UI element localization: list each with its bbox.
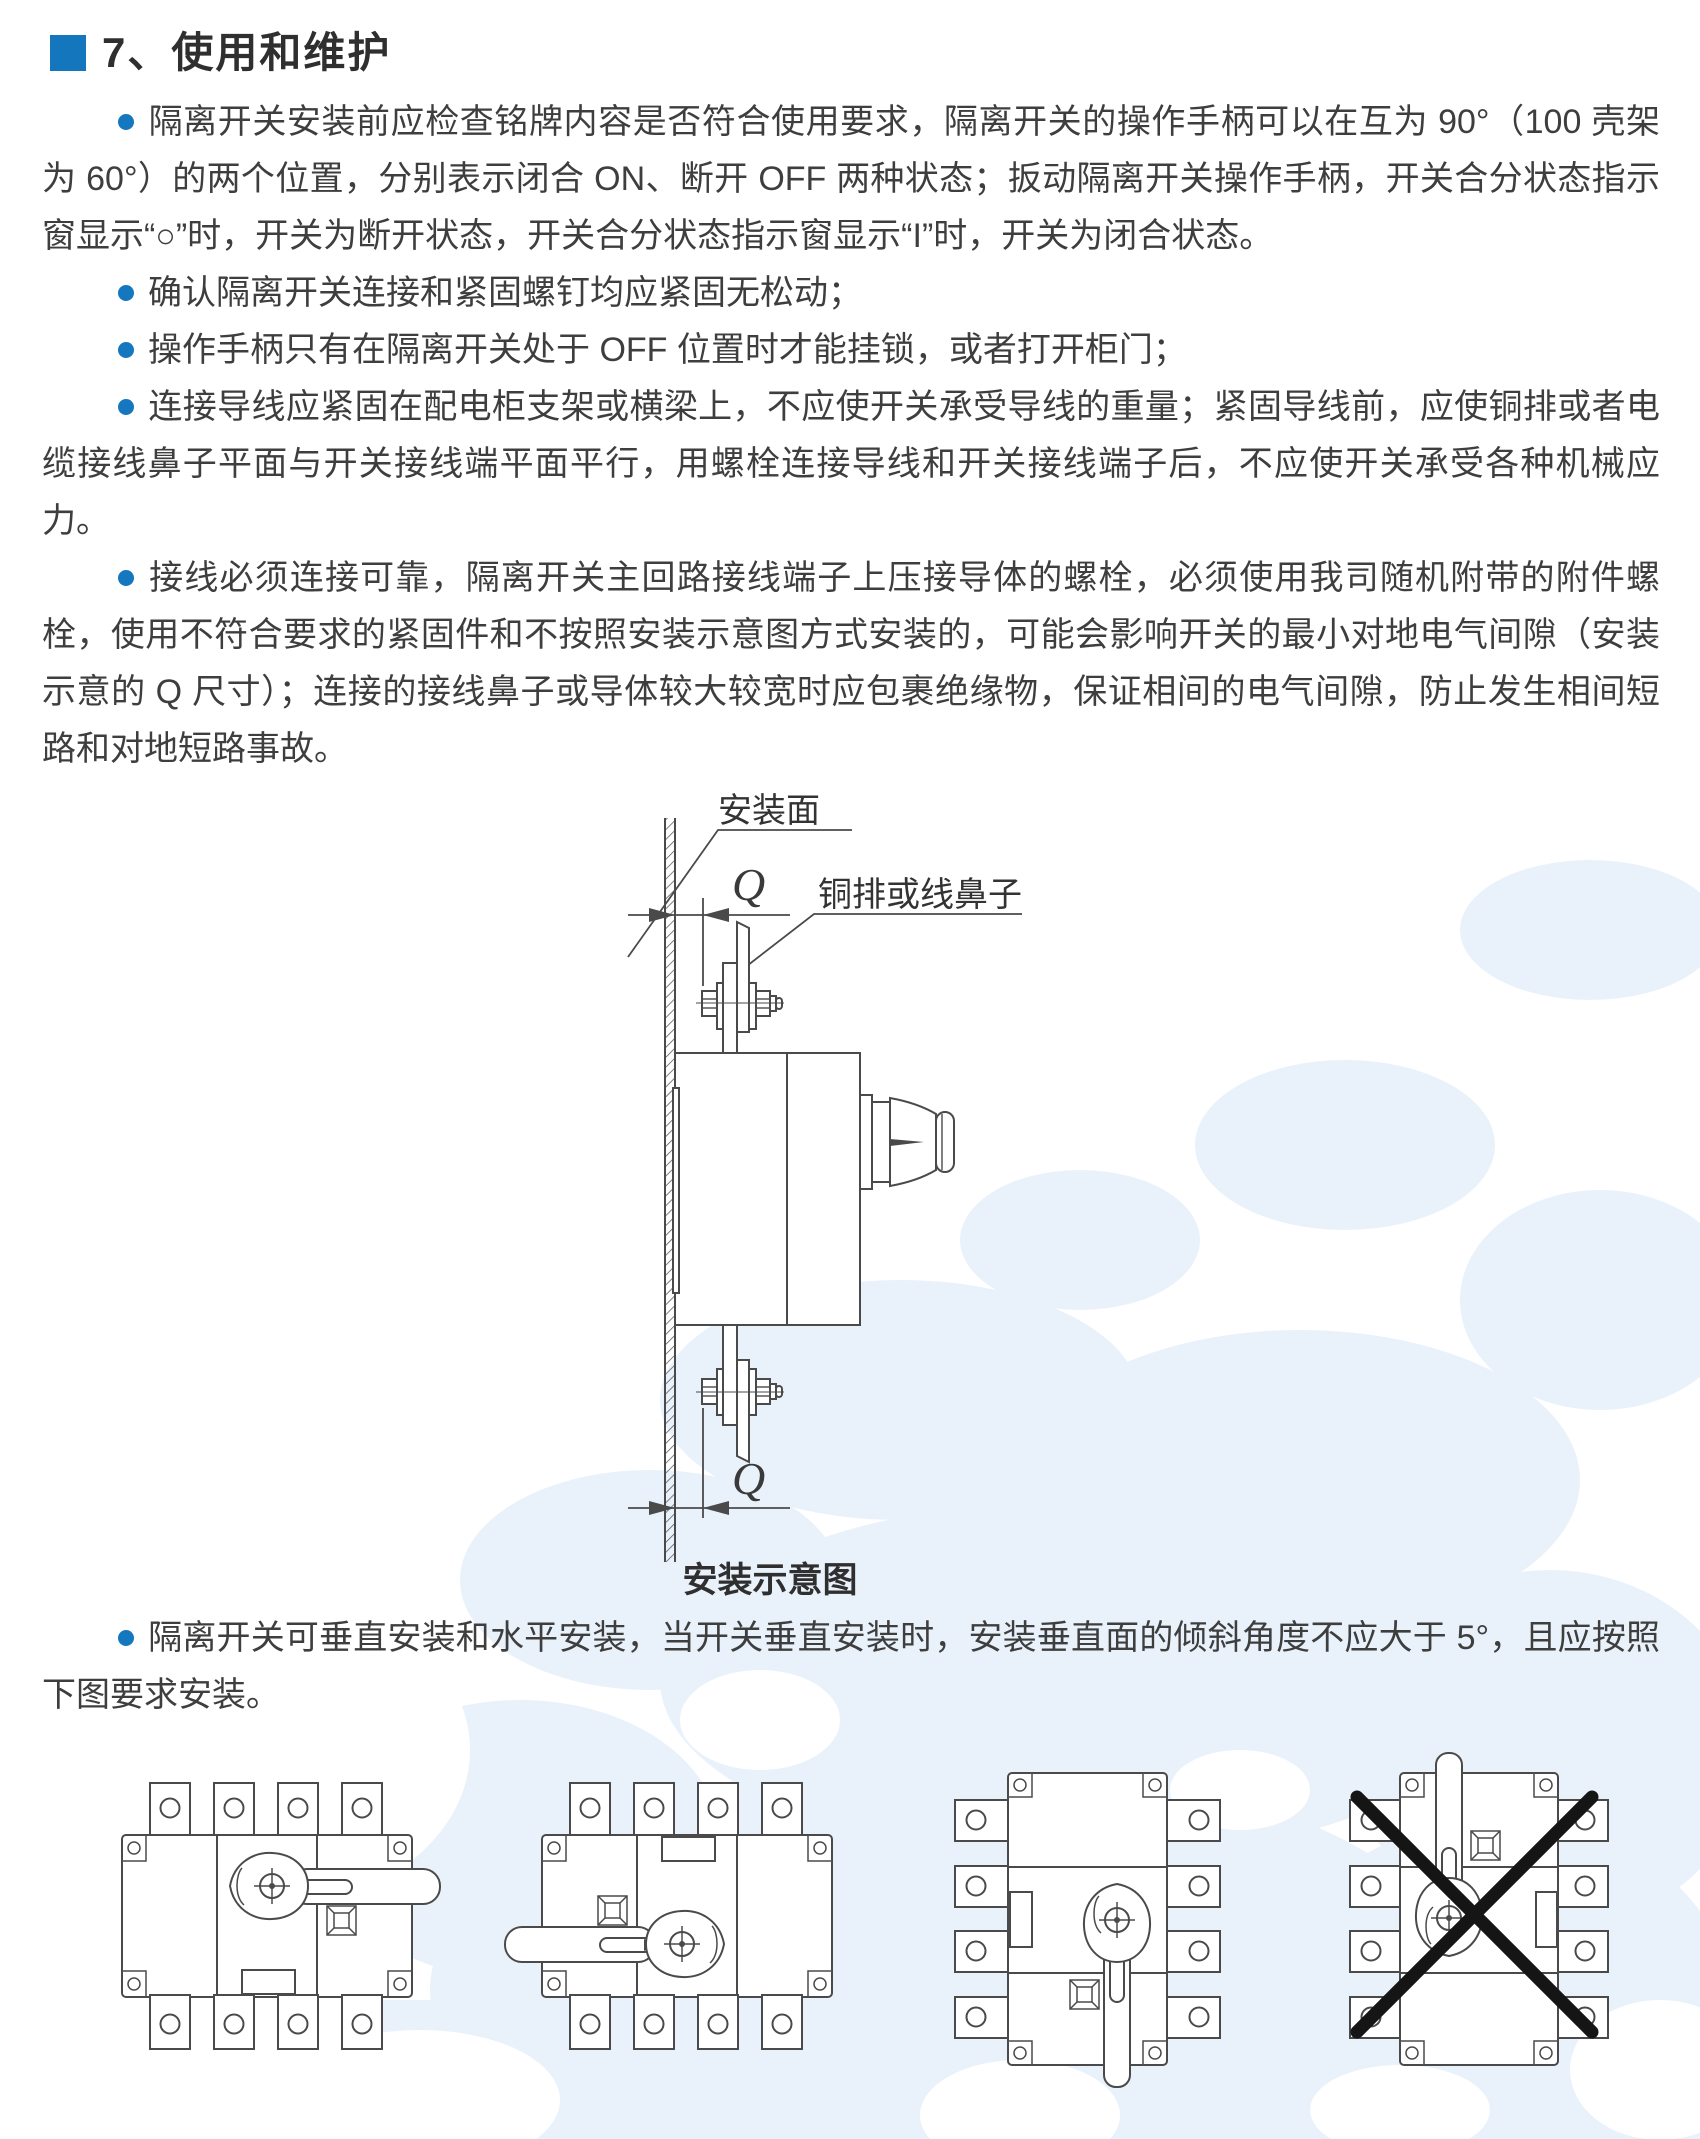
body-text: 隔离开关安装前应检查铭牌内容是否符合使用要求，隔离开关的操作手柄可以在互为 90… [42, 94, 1660, 778]
switch-body-side [673, 1053, 954, 1325]
figure-vertical-handle-down [955, 1773, 1220, 2087]
figure-horizontal-handle-right [122, 1783, 440, 2049]
bullet-item: 确认隔离开关连接和紧固螺钉均应紧固无松动； [42, 265, 1660, 322]
terminal-tabs [570, 1783, 802, 1837]
bullet-icon [118, 342, 134, 358]
bullet-text: 隔离开关安装前应检查铭牌内容是否符合使用要求，隔离开关的操作手柄可以在互为 90… [42, 103, 1660, 255]
bullet-item: 接线必须连接可靠，隔离开关主回路接线端子上压接导体的螺栓，必须使用我司随机附带的… [42, 550, 1660, 778]
terminal-tabs [150, 1995, 382, 2049]
bullet-icon [118, 114, 134, 130]
bullet-icon [118, 285, 134, 301]
dimension-q-bottom: Q [732, 1453, 765, 1504]
nameplate-window [662, 1837, 715, 1861]
installation-diagram-caption: 安装示意图 [682, 1561, 857, 1600]
manual-page: 7、使用和维护 隔离开关安装前应检查铭牌内容是否符合使用要求，隔离开关的操作手柄… [0, 0, 1700, 2139]
terminal-tabs [570, 1995, 802, 2049]
bullet-text: 确认隔离开关连接和紧固螺钉均应紧固无松动； [148, 274, 862, 312]
terminal-tabs [150, 1783, 382, 1837]
figure-horizontal-handle-left [505, 1783, 832, 2049]
busbar-leader [743, 914, 1022, 969]
bullet-icon [118, 570, 134, 586]
note-item: 隔离开关可垂直安装和水平安装，当开关垂直安装时，安装垂直面的倾斜角度不应大于 5… [42, 1610, 1660, 1724]
bullet-item: 操作手柄只有在隔离开关处于 OFF 位置时才能挂锁，或者打开柜门； [42, 322, 1660, 379]
nameplate-window [242, 1970, 295, 1994]
note-text: 隔离开关可垂直安装和水平安装，当开关垂直安装时，安装垂直面的倾斜角度不应大于 5… [42, 1619, 1660, 1714]
shaft-boss [1471, 1831, 1500, 1860]
shaft-boss [327, 1906, 356, 1935]
section-header: 7、使用和维护 [50, 32, 391, 74]
mount-surface-label: 安装面 [718, 792, 820, 830]
section-title: 7、使用和维护 [102, 32, 391, 74]
nameplate-window [1536, 1892, 1557, 1947]
nameplate-window [1010, 1892, 1032, 1947]
installation-side-view: 安装面 铜排或线鼻子 Q [628, 792, 1022, 1600]
dimension-q-top: Q [732, 859, 765, 910]
busbar-label: 铜排或线鼻子 [818, 876, 1022, 914]
bullet-icon [118, 1630, 134, 1646]
bullet-item: 隔离开关安装前应检查铭牌内容是否符合使用要求，隔离开关的操作手柄可以在互为 90… [42, 94, 1660, 265]
bullet-text: 操作手柄只有在隔离开关处于 OFF 位置时才能挂锁，或者打开柜门； [148, 331, 1187, 369]
bottom-terminal-assembly [696, 1325, 784, 1462]
shaft-boss [598, 1896, 627, 1925]
section-marker-icon [50, 35, 86, 71]
top-terminal-assembly [696, 922, 784, 1055]
bullet-item: 连接导线应紧固在配电柜支架或横梁上，不应使开关承受导线的重量；紧固导线前，应使铜… [42, 379, 1660, 550]
bullet-icon [118, 399, 134, 415]
figure-vertical-handle-up [1350, 1753, 1608, 2065]
shaft-boss [1070, 1980, 1099, 2009]
bullet-text: 连接导线应紧固在配电柜支架或横梁上，不应使开关承受导线的重量；紧固导线前，应使铜… [42, 388, 1660, 540]
dimension-bottom: Q [628, 1408, 790, 1518]
bullet-text: 接线必须连接可靠，隔离开关主回路接线端子上压接导体的螺栓，必须使用我司随机附带的… [42, 559, 1660, 768]
